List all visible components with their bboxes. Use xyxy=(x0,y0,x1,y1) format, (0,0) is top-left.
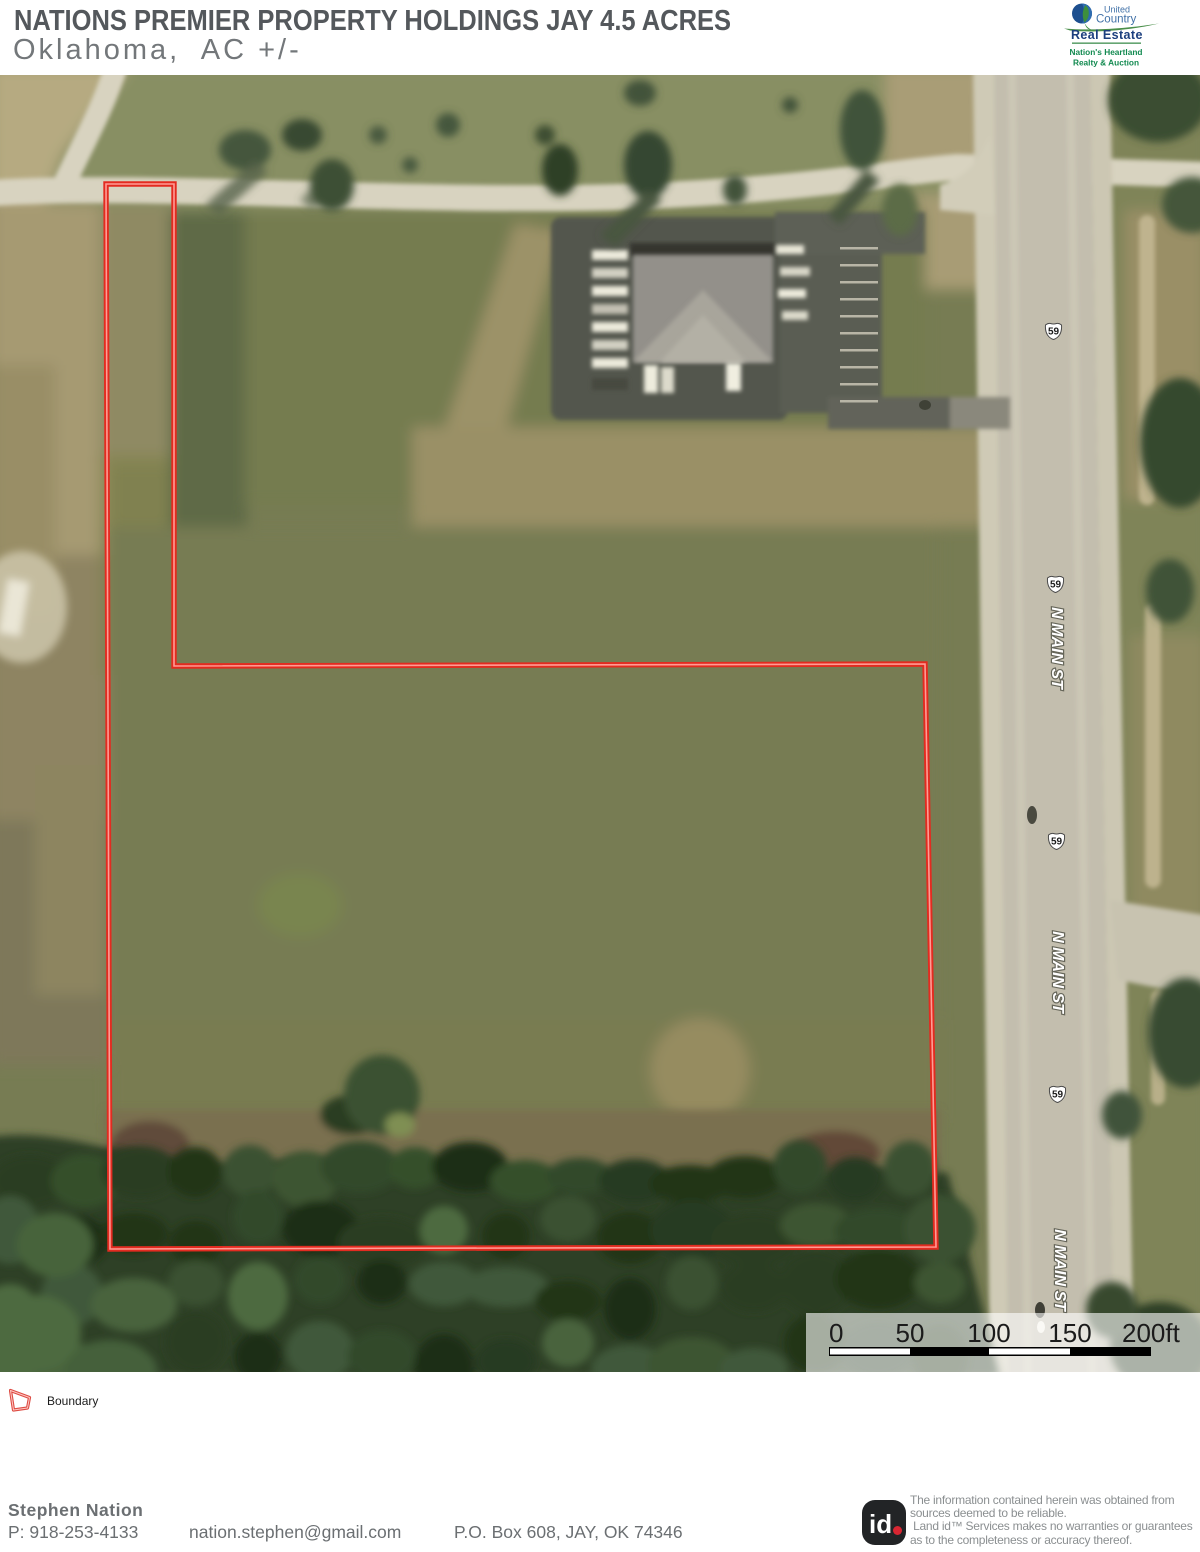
svg-text:59: 59 xyxy=(1048,327,1060,338)
svg-text:N MAIN ST: N MAIN ST xyxy=(1048,607,1065,690)
svg-text:100: 100 xyxy=(967,1318,1010,1348)
svg-text:59: 59 xyxy=(1052,1090,1064,1101)
svg-text:0: 0 xyxy=(829,1318,843,1348)
svg-text:59: 59 xyxy=(1051,837,1063,848)
svg-text:Realty & Auction: Realty & Auction xyxy=(1073,58,1139,68)
svg-text:Country: Country xyxy=(1096,14,1137,26)
svg-text:Real Estate: Real Estate xyxy=(1071,28,1143,42)
svg-text:50: 50 xyxy=(896,1318,925,1348)
svg-text:N MAIN ST: N MAIN ST xyxy=(1049,931,1066,1014)
svg-text:150: 150 xyxy=(1048,1318,1091,1348)
svg-text:59: 59 xyxy=(1050,580,1062,591)
svg-text:N MAIN ST: N MAIN ST xyxy=(1051,1229,1068,1312)
svg-text:id: id xyxy=(869,1509,892,1539)
svg-text:200ft: 200ft xyxy=(1122,1318,1181,1348)
svg-text:Nation's Heartland: Nation's Heartland xyxy=(1070,47,1143,57)
